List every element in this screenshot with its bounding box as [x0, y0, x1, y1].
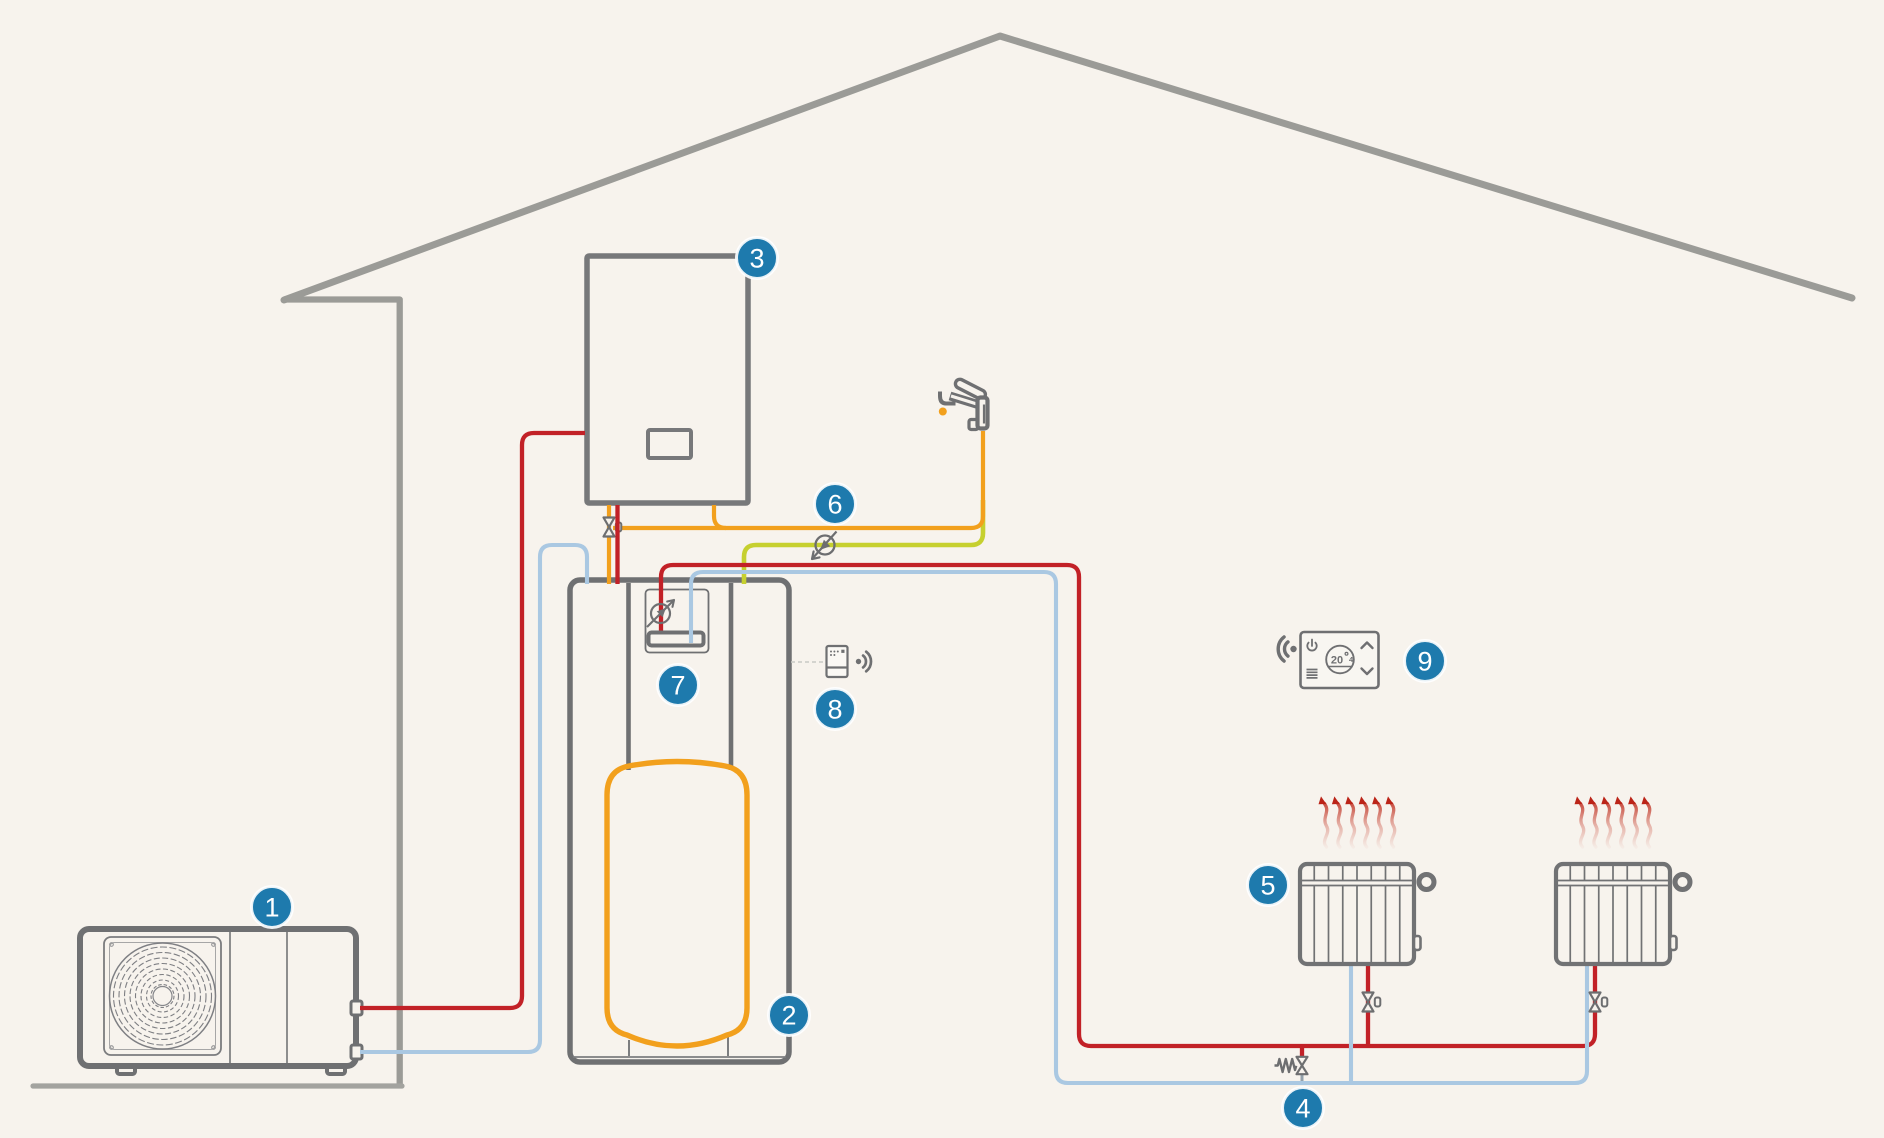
- svg-text:1: 1: [264, 893, 279, 923]
- svg-text:4: 4: [1295, 1094, 1310, 1124]
- svg-text:7: 7: [670, 671, 685, 701]
- svg-text:8: 8: [827, 695, 842, 725]
- svg-text:20: 20: [1331, 655, 1343, 667]
- svg-text:9: 9: [1417, 647, 1432, 677]
- svg-text:2: 2: [781, 1001, 796, 1031]
- svg-text:5: 5: [1260, 871, 1275, 901]
- svg-text:6: 6: [827, 490, 842, 520]
- svg-text:3: 3: [749, 244, 764, 274]
